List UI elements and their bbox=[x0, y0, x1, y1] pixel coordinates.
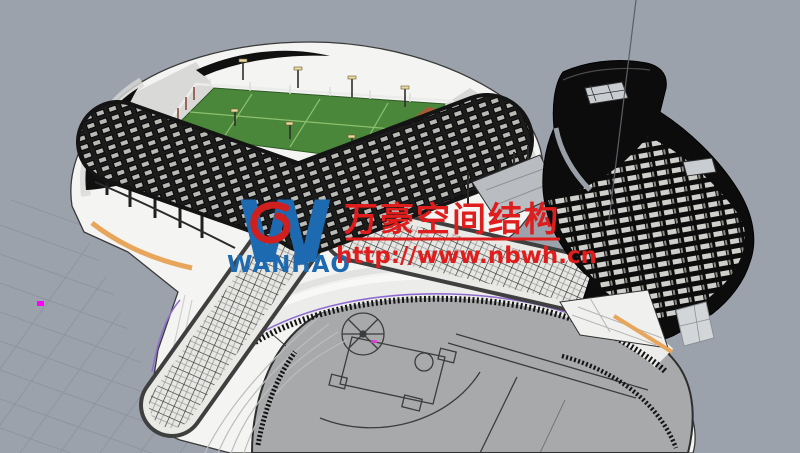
model-canvas[interactable]: W WANHAO 万豪空间结构 http://www.nbwh.cn bbox=[0, 0, 800, 453]
watermark-logo-text: WANHAO bbox=[227, 252, 351, 278]
watermark-company-cn: 万豪空间结构 bbox=[344, 200, 560, 240]
watermark-url: http://www.nbwh.cn bbox=[336, 243, 597, 269]
cad-viewport[interactable]: W WANHAO 万豪空间结构 http://www.nbwh.cn bbox=[0, 0, 800, 453]
magenta-marker bbox=[37, 301, 44, 306]
magenta-marker-small bbox=[371, 340, 377, 343]
